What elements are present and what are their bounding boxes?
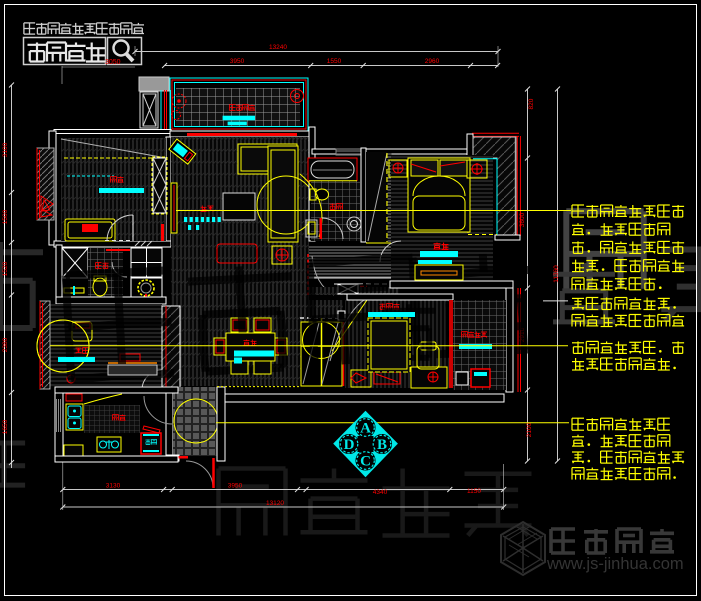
svg-text:A: A [360,421,371,437]
svg-text:3950: 3950 [230,58,245,65]
svg-text:C: C [360,454,371,470]
svg-text:1650: 1650 [2,419,9,434]
svg-text:3130: 3130 [106,483,121,490]
svg-text:2960: 2960 [425,58,440,65]
svg-text:D: D [344,437,355,453]
svg-text:11360: 11360 [553,265,560,283]
svg-text:1150: 1150 [467,488,481,495]
svg-text:2380: 2380 [2,337,9,352]
svg-text:820: 820 [528,98,535,109]
svg-text:www.js-jinhua.com: www.js-jinhua.com [546,555,684,573]
svg-text:13120: 13120 [266,500,284,507]
svg-text:4340: 4340 [373,489,388,496]
svg-text:13240: 13240 [269,44,287,51]
svg-text:1520: 1520 [2,261,9,276]
svg-text:1550: 1550 [327,58,342,65]
svg-text:3050: 3050 [105,59,121,66]
svg-text:1500: 1500 [2,209,9,224]
svg-text:2100: 2100 [526,422,533,437]
svg-text:B: B [377,437,387,453]
svg-text:3950: 3950 [228,483,243,490]
svg-text:3100: 3100 [2,142,9,157]
